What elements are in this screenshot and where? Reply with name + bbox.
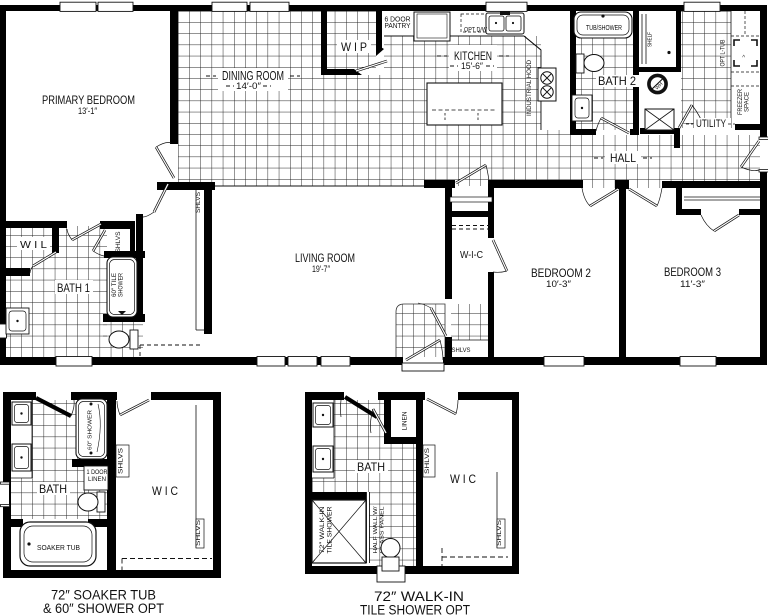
svg-text:LINEN: LINEN [88, 476, 106, 483]
svg-text:BATH 2: BATH 2 [598, 74, 636, 88]
svg-text:60″ TILE: 60″ TILE [112, 273, 118, 297]
svg-text:72″ WALK-IN: 72″ WALK-IN [320, 507, 326, 554]
svg-text:W I C: W I C [450, 472, 476, 486]
svg-text:11′-3″: 11′-3″ [680, 279, 706, 290]
svg-text:19′-7″: 19′-7″ [312, 264, 330, 275]
svg-text:SHLVS: SHLVS [196, 520, 202, 546]
svg-text:W I P: W I P [341, 40, 367, 54]
svg-text:BATH: BATH [357, 460, 385, 474]
svg-text:UTILITY: UTILITY [696, 118, 726, 130]
svg-text:HALL: HALL [610, 151, 636, 165]
svg-text:>: > [742, 54, 748, 57]
svg-text:SHLVS: SHLVS [452, 347, 472, 354]
svg-text:BATH 1: BATH 1 [57, 281, 90, 295]
svg-text:14′-0″: 14′-0″ [236, 81, 262, 92]
svg-text:SHLVS: SHLVS [119, 448, 125, 474]
svg-text:BEDROOM 3: BEDROOM 3 [664, 267, 721, 279]
svg-text:FREEZER: FREEZER [738, 88, 744, 115]
svg-text:BATH: BATH [39, 482, 67, 496]
svg-text:1 DOOR: 1 DOOR [87, 469, 108, 476]
svg-text:15′-6″: 15′-6″ [461, 61, 484, 72]
svg-text:W-I-C: W-I-C [460, 249, 483, 261]
svg-text:SPACE: SPACE [745, 92, 751, 112]
svg-text:SHLVS: SHLVS [497, 520, 503, 546]
svg-text:TILE SHOWER OPT: TILE SHOWER OPT [360, 603, 470, 615]
svg-text:TILE SHOWER: TILE SHOWER [328, 506, 334, 554]
svg-text:10′-3″: 10′-3″ [546, 279, 572, 290]
svg-text:13′-1″: 13′-1″ [78, 106, 97, 117]
svg-text:SOAKER TUB: SOAKER TUB [37, 543, 80, 552]
svg-text:SHLVS: SHLVS [425, 448, 431, 474]
svg-text:OPT L-TUB: OPT L-TUB [720, 40, 727, 67]
svg-text:OPT D/W: OPT D/W [464, 27, 488, 34]
svg-text:W I C: W I C [152, 484, 178, 498]
svg-text:SHLVS: SHLVS [116, 232, 122, 253]
svg-text:& 60″ SHOWER OPT: & 60″ SHOWER OPT [43, 601, 164, 615]
svg-text:SHELF: SHELF [648, 31, 654, 47]
svg-text:LINEN: LINEN [403, 412, 409, 431]
svg-text:SHLVS: SHLVS [196, 192, 202, 213]
svg-text:TUB/SHOWER: TUB/SHOWER [586, 25, 622, 32]
svg-text:LIVING ROOM: LIVING ROOM [295, 251, 355, 265]
svg-text:W I L: W I L [20, 239, 47, 251]
svg-text:SHOWER: SHOWER [119, 272, 125, 297]
svg-text:60″ SHOWER: 60″ SHOWER [88, 410, 94, 450]
svg-text:BEDROOM 2: BEDROOM 2 [531, 266, 591, 280]
svg-text:HALF WALL W/: HALF WALL W/ [373, 506, 379, 553]
svg-text:INDUSTRIAL HOOD: INDUSTRIAL HOOD [526, 60, 533, 116]
svg-text:PANTRY: PANTRY [385, 23, 411, 30]
